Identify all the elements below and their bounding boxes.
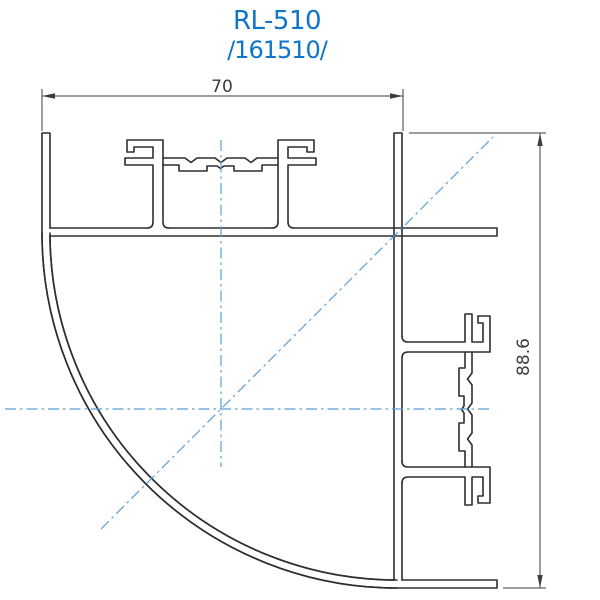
- height-dimension-value: 88.6: [514, 338, 534, 376]
- height-arrow-top: [537, 133, 542, 146]
- outer-wall-and-quarter-arc: [42, 133, 397, 588]
- width-arrow-left: [42, 93, 55, 98]
- drawing-canvas: 70 88.6 RL-510 /161510/: [0, 0, 600, 600]
- centerlines: [5, 137, 493, 529]
- title-part-number: /161510/: [227, 36, 329, 64]
- right-clip-post: [272, 140, 316, 228]
- height-arrow-bottom: [537, 575, 542, 588]
- technical-drawing-svg: 70 88.6 RL-510 /161510/: [0, 0, 600, 600]
- title-model: RL-510: [233, 6, 321, 36]
- dimension-arrows: [42, 93, 543, 588]
- diagonal-centerline: [101, 137, 493, 529]
- channel-floor: [50, 228, 497, 236]
- width-dimension-value: 70: [211, 77, 233, 97]
- width-arrow-right: [390, 93, 403, 98]
- left-clip-post: [125, 140, 169, 228]
